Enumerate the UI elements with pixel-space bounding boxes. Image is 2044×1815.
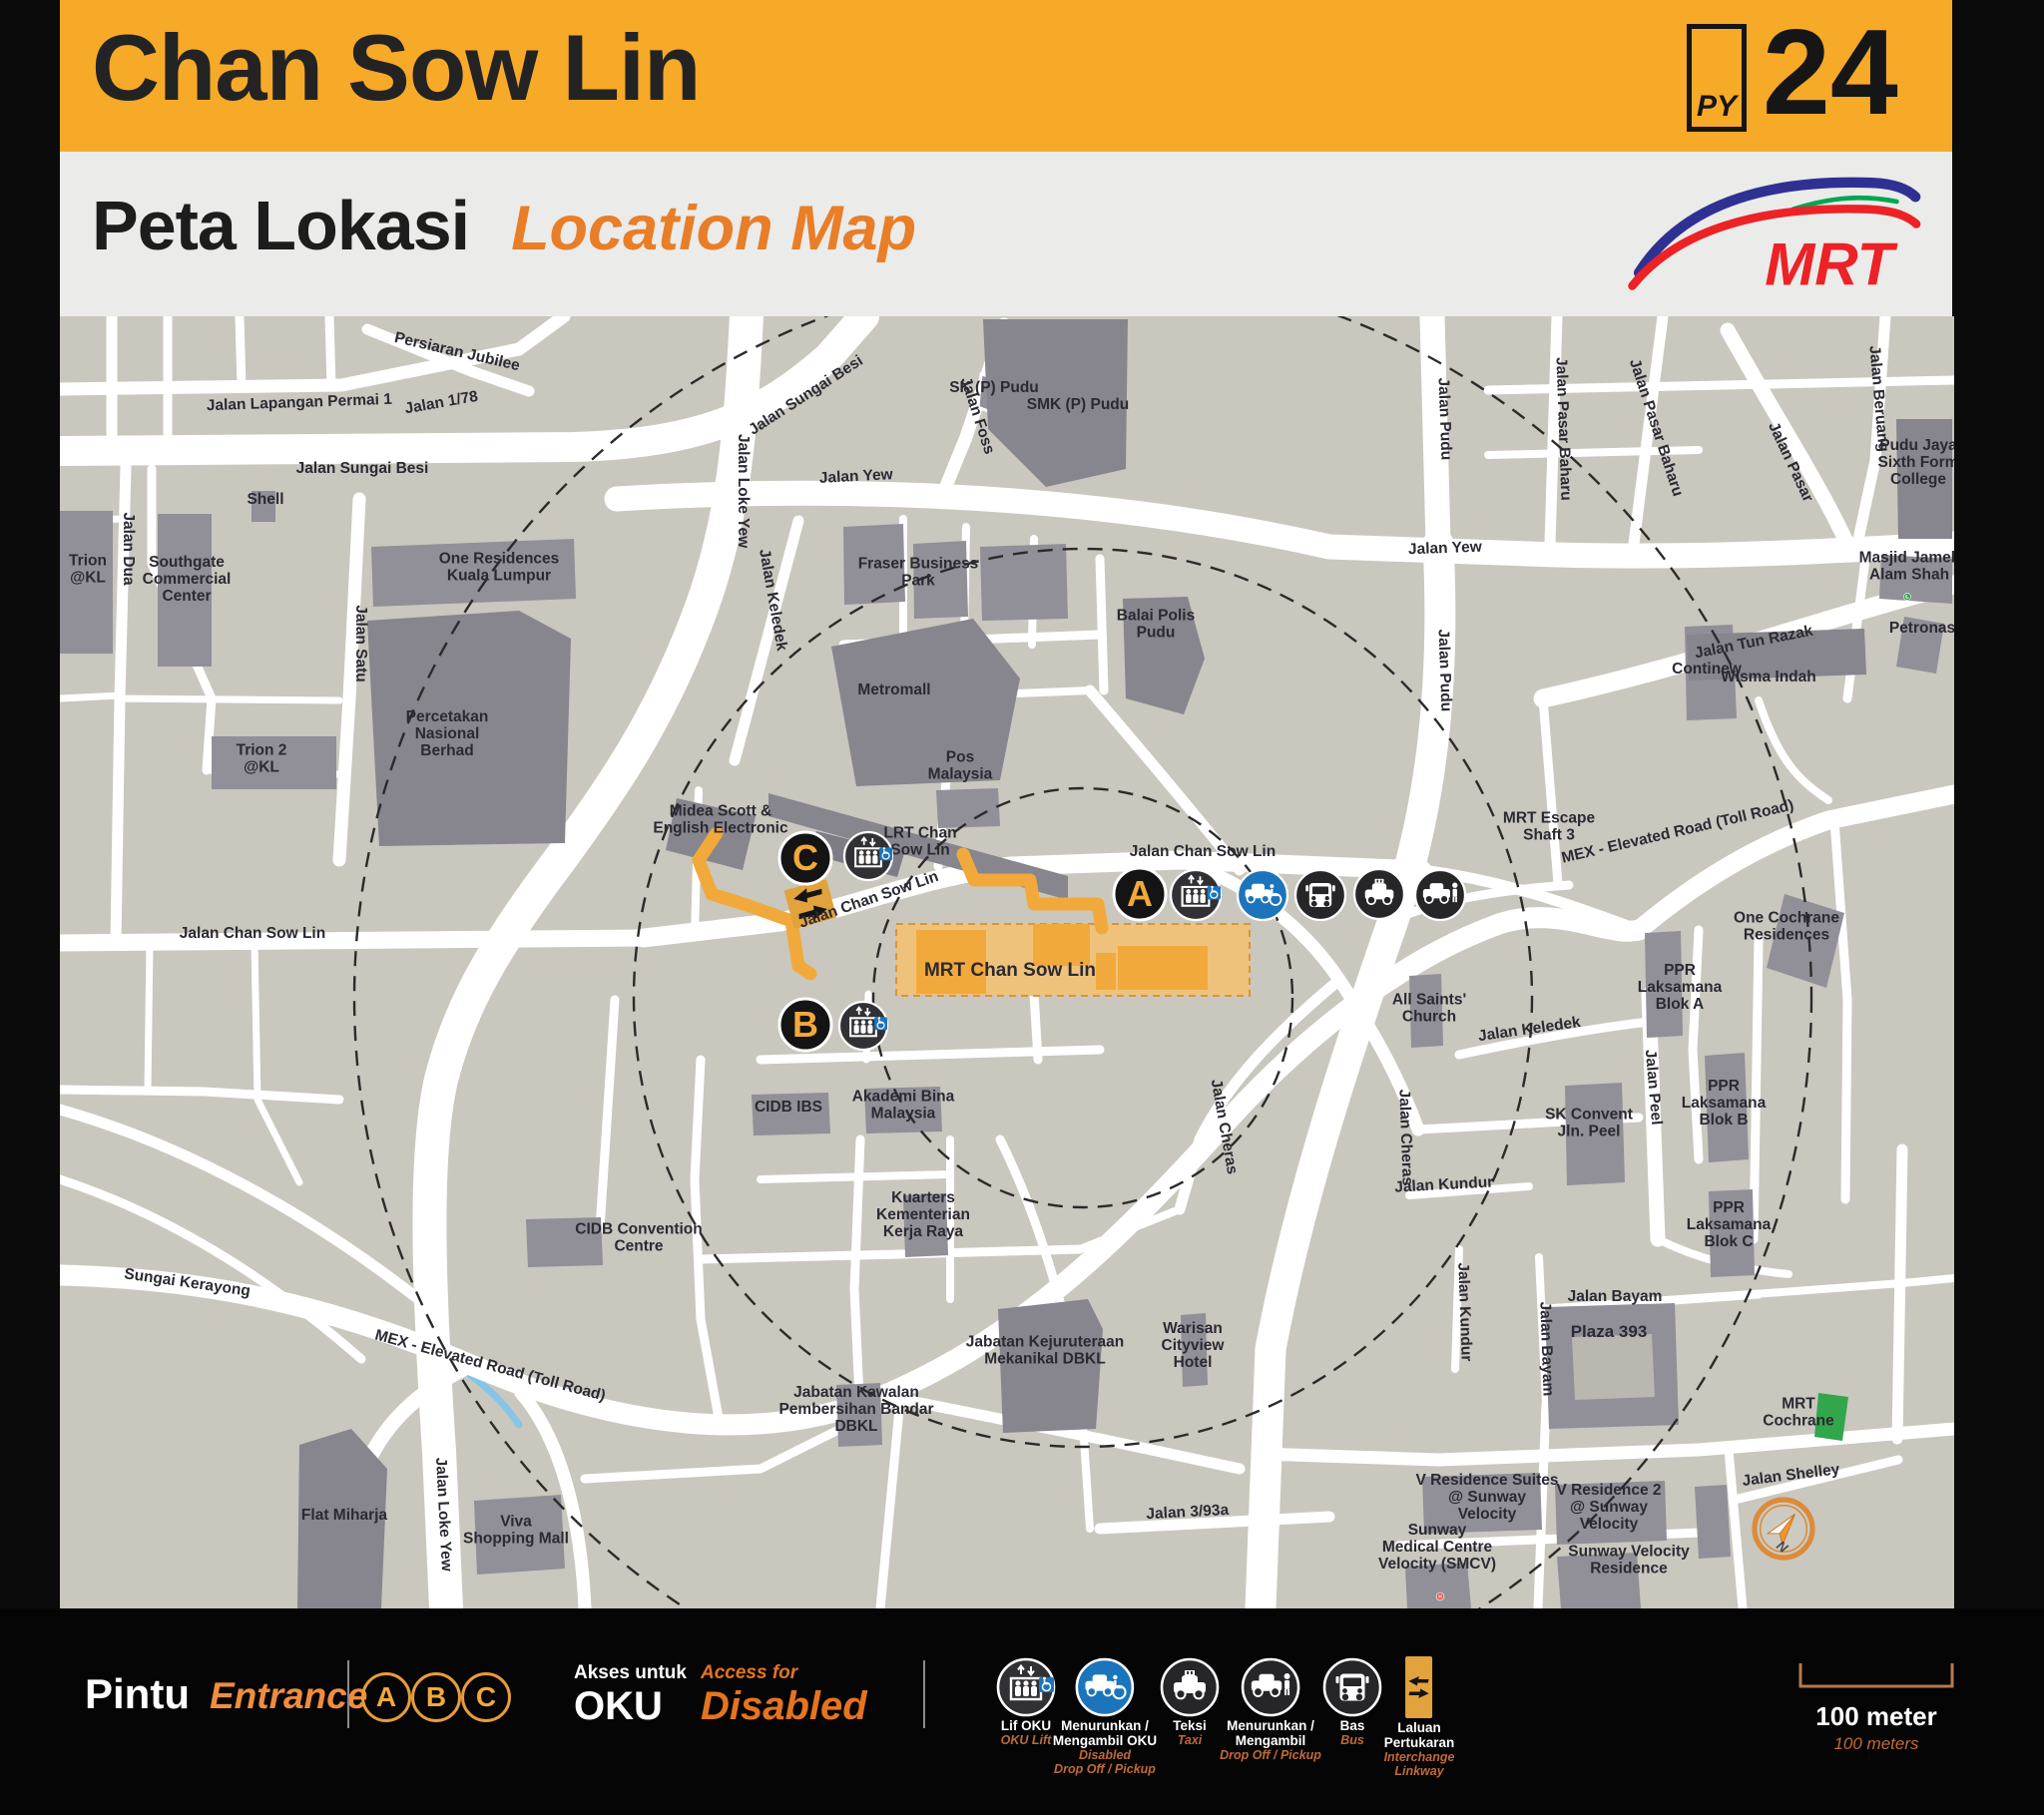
legend-dropoff: Menurunkan / Mengambil Drop Off / Pickup [1220,1656,1321,1762]
subtitle-english: Location Map [511,193,916,264]
legend-label: Linkway [1384,1764,1455,1778]
map-content: Persiaran JubileeJalan Lapangan Permai 1… [60,316,1954,1608]
legend-label: Bus [1321,1733,1383,1747]
road [1034,994,1038,1060]
dropoff-icon [1415,870,1465,920]
station-number: 24 [1763,2,1898,142]
station-name: Chan Sow Lin [92,14,700,122]
map-label: Jalan Chan Sow Lin [1130,843,1276,860]
bus-icon [1321,1656,1383,1718]
map-label: CIDB IBS [755,1099,822,1116]
map-label: LRT ChanSow Lin [883,824,956,858]
map-label: SK ConventJln. Peel [1545,1106,1633,1139]
location-map: Persiaran JubileeJalan Lapangan Permai 1… [60,316,1954,1608]
hospital-letter: H [1438,1594,1442,1600]
scale-label-malay: 100 meter [1796,1701,1956,1732]
access-malay-big: OKU [574,1684,687,1728]
road [60,695,120,698]
map-label: Jalan Pudu [1435,377,1455,460]
entrance-letter: B [792,1004,818,1045]
road [1754,940,1759,1239]
map-label: Plaza 393 [1571,1322,1648,1341]
building [831,619,1020,786]
map-label: Flat Miharja [301,1507,388,1524]
building [1695,1485,1731,1559]
road [329,316,331,387]
disabled-dropoff-icon [1238,870,1287,920]
entrance-letter: C [792,837,818,878]
line-code: PY [1697,92,1737,127]
map-label: Masjid JamekAlam Shah [1859,549,1954,583]
dropoff-icon [1243,1659,1298,1715]
road [60,385,341,389]
access-english-big: Disabled [701,1684,867,1728]
legend-label: Teksi [1159,1718,1221,1733]
oku-lift-icon [995,1656,1057,1718]
map-label: Trion@KL [69,552,107,586]
legend-label: Bas [1321,1718,1383,1733]
map-label: One CochraneResidences [1734,909,1839,943]
map-label: Jalan Cheras [1395,1089,1415,1185]
road [1100,559,1104,690]
legend-taxi: Teksi Taxi [1159,1656,1221,1747]
map-label: Jabatan KejuruteraanMekanikal DBKL [966,1333,1125,1367]
legend-bus: Bas Bus [1321,1656,1383,1747]
legend-footer: Pintu Entrance A B C Akses untuk OKU Acc… [0,1608,2044,1815]
disabled-dropoff-icon [1077,1659,1133,1715]
scale-bar: 100 meter 100 meters [1796,1660,1956,1754]
building [936,788,1000,828]
map-label: Shell [247,491,283,508]
mrt-logo: MRT [1625,158,1934,307]
map-label: Trion 2@KL [237,741,287,775]
map-label: SMK (P) Pudu [1027,396,1129,413]
interchange-linkway-icon [1402,1654,1436,1720]
entrance-marker-a: A [1114,868,1166,920]
legend-label: Menurunkan / [1053,1718,1157,1733]
legend-interchange: Laluan Pertukaran Interchange Linkway [1384,1654,1455,1778]
entrance-badge-b: B [411,1672,461,1722]
map-label: Wisma Indah [1721,669,1815,685]
scale-bracket [1796,1660,1956,1690]
station-block [1118,946,1208,990]
map-label: MRT Chan Sow Lin [924,960,1096,981]
scale-label-english: 100 meters [1796,1734,1956,1754]
road [1897,1149,1902,1439]
legend-label: Pertukaran [1384,1735,1455,1750]
legend-label: Disabled [1053,1748,1157,1762]
map-label: Jalan Sungai Besi [296,460,429,477]
bus-icon [1295,870,1345,920]
road [761,1174,950,1179]
lift-icon [1171,870,1221,920]
legend-label: OKU Lift [995,1733,1057,1747]
map-label: One ResidencesKuala Lumpur [439,550,560,584]
map-label: Jalan Pudu [1435,629,1455,711]
entrance-badge-a: A [361,1672,411,1722]
building [980,544,1068,621]
interchange-linkway-glyph [1405,1656,1432,1718]
building [1572,1334,1655,1400]
map-label: All Saints'Church [1392,991,1466,1025]
subtitle-band: Peta Lokasi Location Map MRT [60,152,1952,316]
legend-label: Drop Off / Pickup [1053,1762,1157,1776]
map-label: Metromall [857,681,930,698]
road [120,698,339,700]
legend-label: Menurunkan / [1220,1718,1321,1733]
lift-icon [839,1002,887,1050]
legend-label: Interchange [1384,1750,1455,1764]
station-location-map-poster: Chan Sow Lin PY 24 Peta Lokasi Location … [0,0,2044,1815]
map-label: Jalan Kundur [1454,1262,1474,1362]
map-label: Jalan Chan Sow Lin [180,925,325,942]
subtitle-malay: Peta Lokasi [92,186,469,265]
map-label: Jalan Yew [1408,539,1483,559]
legend-label: Drop Off / Pickup [1220,1748,1321,1762]
entrance-badge-c: C [461,1672,511,1722]
map-label: SK (P) Pudu [949,379,1039,396]
crescent-icon [1903,593,1910,600]
compass-icon: N [1755,1500,1812,1558]
hospital-icon: H [1436,1592,1444,1600]
map-label: Jalan Dua [120,512,137,586]
access-malay-small: Akses untuk [574,1662,687,1684]
legend-label: Laluan [1384,1720,1455,1735]
entrance-marker-c: C [779,832,831,884]
taxi-icon [1354,869,1404,919]
footer-divider [347,1660,349,1728]
line-code-badge: PY [1687,24,1747,132]
taxi-icon [1159,1656,1221,1718]
lift-icon [998,1659,1054,1715]
legend-oku-lift: Lif OKU OKU Lift [995,1656,1057,1747]
map-label: Midea Scott &English Electronic [653,802,788,836]
header-band: Chan Sow Lin PY 24 [60,0,1952,152]
lift-icon [844,832,892,880]
map-label: Petronas [1889,620,1954,637]
entrance-label-malay: Pintu [85,1670,190,1718]
taxi-icon [1162,1659,1218,1715]
dropoff-icon [1240,1656,1301,1718]
legend-label: Mengambil OKU [1053,1733,1157,1748]
disabled-dropoff-icon [1074,1656,1136,1718]
entrance-label-english: Entrance [210,1675,367,1717]
map-label: Jalan Satu [352,605,369,682]
entrance-marker-b: B [779,999,831,1051]
road [240,316,242,387]
entrance-letter: A [1127,873,1153,914]
station-block [1096,953,1116,990]
access-english-small: Access for [701,1662,867,1684]
map-label: Jalan Bayam [1568,1288,1663,1305]
map-label: Jalan Bayam [1536,1301,1556,1396]
bus-icon [1324,1659,1380,1715]
road [1902,1278,1954,1283]
map-label: Jalan Loke Yew [735,434,752,549]
road [148,943,150,1090]
legend-disabled-dropoff: Menurunkan / Mengambil OKU Disabled Drop… [1053,1656,1157,1776]
legend-label: Taxi [1159,1733,1221,1747]
logo-text: MRT [1765,231,1897,298]
legend-label: Lif OKU [995,1718,1057,1733]
legend-label: Mengambil [1220,1733,1321,1748]
footer-divider [923,1660,925,1728]
